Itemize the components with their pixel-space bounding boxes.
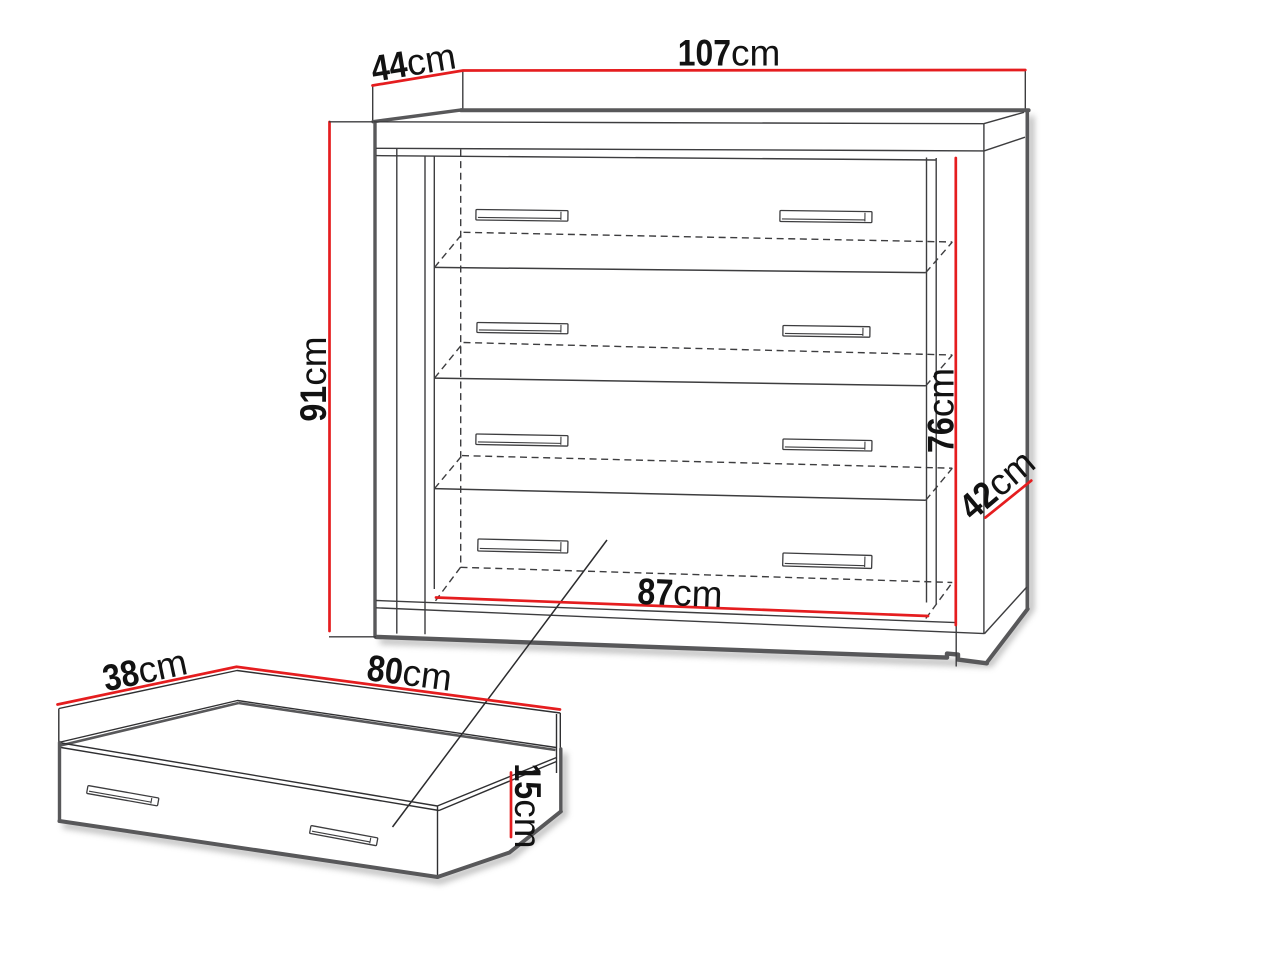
svg-text:91: 91 xyxy=(293,386,334,422)
svg-text:cm: cm xyxy=(731,33,780,74)
svg-text:80: 80 xyxy=(365,647,406,692)
svg-text:cm: cm xyxy=(921,368,962,417)
svg-text:cm: cm xyxy=(507,799,548,848)
svg-text:cm: cm xyxy=(293,336,334,385)
svg-text:15: 15 xyxy=(507,763,548,799)
svg-text:cm: cm xyxy=(400,652,454,699)
svg-text:76: 76 xyxy=(921,417,962,453)
svg-text:cm: cm xyxy=(404,35,459,84)
svg-text:87: 87 xyxy=(637,571,674,613)
svg-text:107: 107 xyxy=(678,33,731,74)
svg-text:cm: cm xyxy=(672,572,723,615)
